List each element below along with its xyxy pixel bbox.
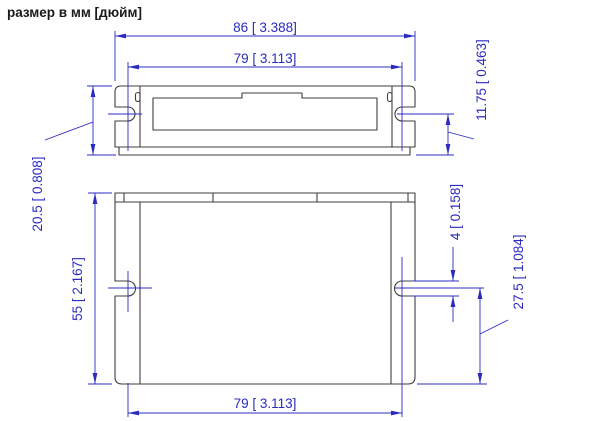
front-view-flange-dividers xyxy=(140,202,391,384)
top-view: 86 [ 3.388] 79 [ 3.113] 20.5 [ 0.808] 11… xyxy=(30,20,489,232)
arrow-left-icon xyxy=(128,65,139,70)
arrow-down-icon xyxy=(478,373,483,384)
arrow-left-icon xyxy=(128,411,139,416)
dim-slot-to-bottom-label: 27.5 [ 1.084] xyxy=(511,234,526,309)
top-view-flange-dividers xyxy=(140,86,392,147)
arrow-right-icon xyxy=(391,65,402,70)
technical-drawing-canvas: размер в мм [дюйм] 86 [ 3.388] 79 [ 3.11… xyxy=(0,0,600,421)
dim-slot-spacing-top-label: 79 [ 3.113] xyxy=(234,51,297,66)
arrow-up-icon xyxy=(451,296,456,307)
dim-body-height: 55 [ 2.167] xyxy=(70,193,112,384)
arrow-right-icon xyxy=(404,34,415,39)
arrow-up-icon xyxy=(93,193,98,204)
arrow-down-icon xyxy=(93,373,98,384)
dim-slot-to-base: 11.75 [ 0.463] xyxy=(416,39,489,155)
top-view-left-hole xyxy=(136,93,141,102)
arrow-down-icon xyxy=(446,144,451,155)
dim-slot-spacing-bottom-label: 79 [ 3.113] xyxy=(234,396,297,411)
top-view-front-panel xyxy=(153,93,377,130)
dim-slot-spacing-top: 79 [ 3.113] xyxy=(128,51,402,151)
leader-line xyxy=(480,320,508,334)
dim-slot-to-base-label: 11.75 [ 0.463] xyxy=(474,39,489,121)
top-view-right-hole xyxy=(388,93,393,102)
drawing-title: размер в мм [дюйм] xyxy=(7,5,142,20)
dim-overall-width-label: 86 [ 3.388] xyxy=(233,20,297,35)
front-view-body-outline xyxy=(115,193,415,384)
dim-slot-width-label: 4 [ 0.158] xyxy=(448,184,463,240)
top-view-body-outline xyxy=(115,86,415,147)
arrow-left-icon xyxy=(115,34,126,39)
dim-overall-depth-label: 20.5 [ 0.808] xyxy=(30,156,45,231)
arrow-up-icon xyxy=(91,86,96,97)
dim-slot-spacing-bottom: 79 [ 3.113] xyxy=(128,396,402,415)
front-view: 55 [ 2.167] 4 [ 0.158] 27.5 [ 1.084] 79 … xyxy=(70,184,526,417)
arrow-up-icon xyxy=(446,114,451,125)
dim-body-height-label: 55 [ 2.167] xyxy=(70,257,85,321)
arrow-down-icon xyxy=(91,144,96,155)
dim-slot-width: 4 [ 0.158] xyxy=(412,184,463,322)
leader-line xyxy=(45,122,93,140)
arrow-up-icon xyxy=(478,288,483,299)
dim-overall-depth: 20.5 [ 0.808] xyxy=(30,86,116,232)
front-view-top-plate xyxy=(115,193,415,202)
top-view-base-plate xyxy=(119,147,410,155)
dim-slot-to-bottom: 27.5 [ 1.084] xyxy=(417,234,526,384)
leader-line xyxy=(448,132,474,139)
arrow-right-icon xyxy=(391,411,402,416)
arrow-down-icon xyxy=(451,270,456,281)
dimension-drawing: размер в мм [дюйм] 86 [ 3.388] 79 [ 3.11… xyxy=(0,0,600,421)
